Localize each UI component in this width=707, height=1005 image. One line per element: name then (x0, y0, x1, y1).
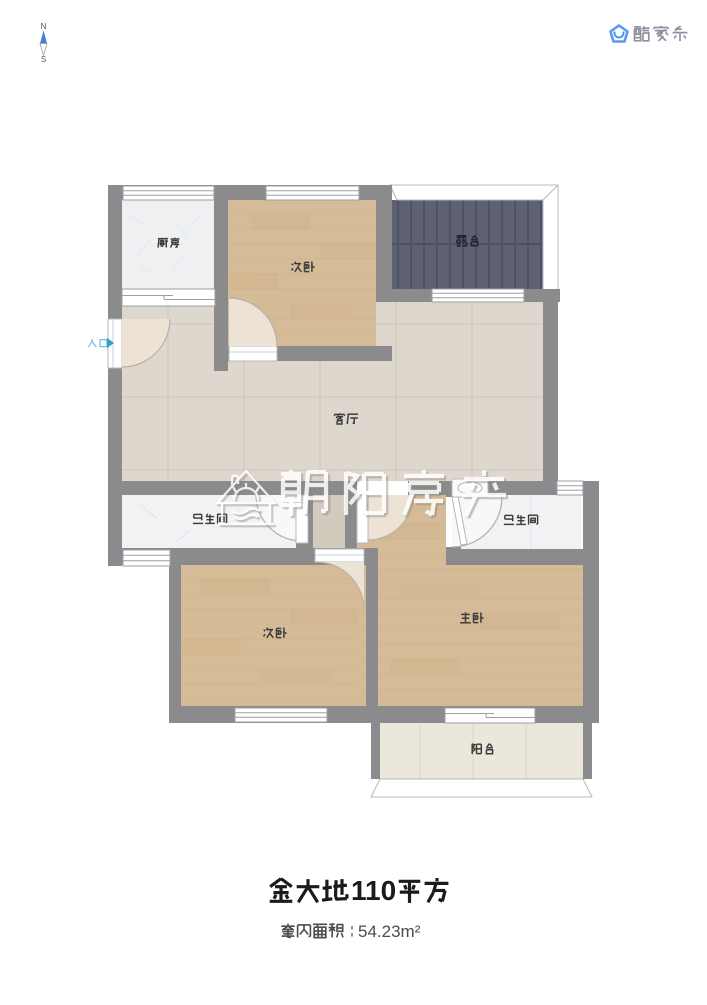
svg-text:S: S (41, 55, 46, 64)
svg-text:N: N (41, 22, 47, 31)
svg-text:110: 110 (351, 875, 396, 906)
svg-text:54.23m²: 54.23m² (358, 922, 421, 941)
